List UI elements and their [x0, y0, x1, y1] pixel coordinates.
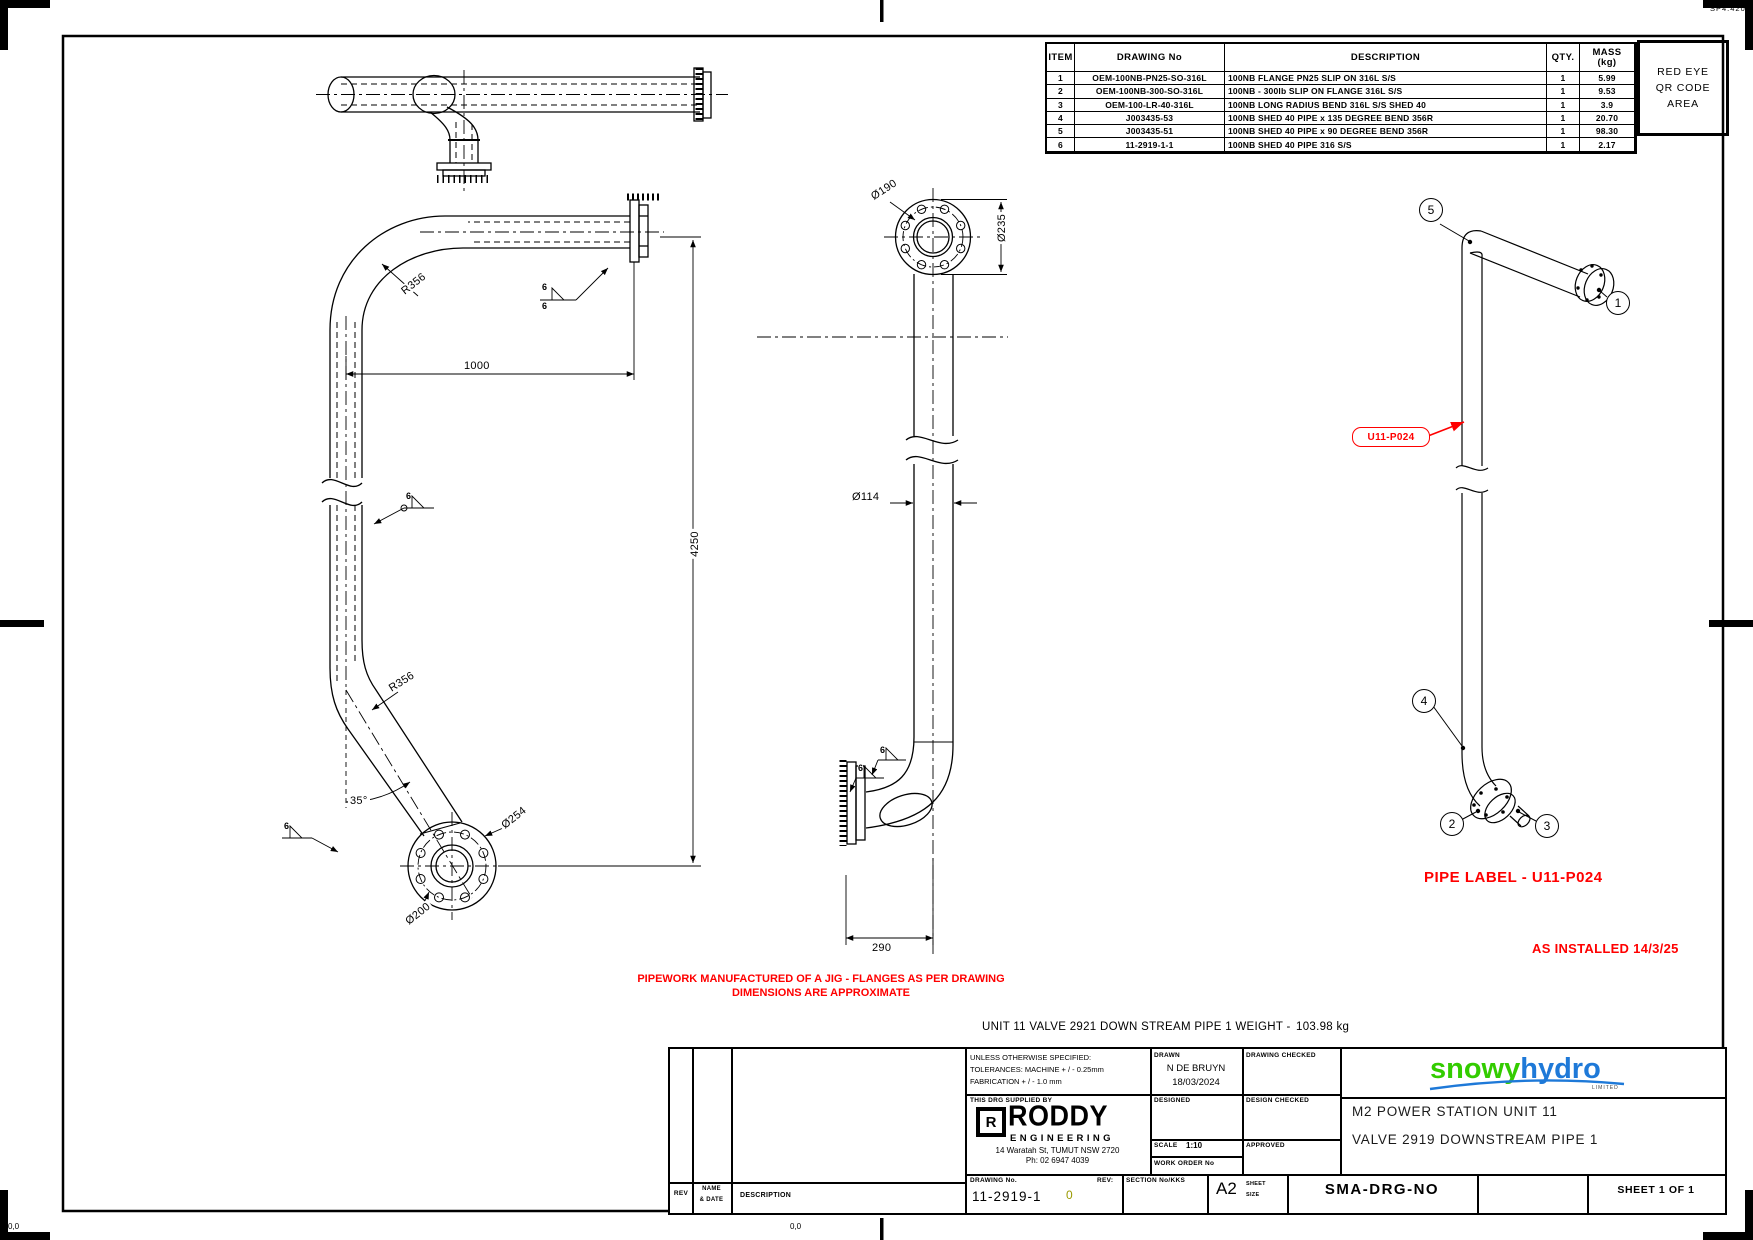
roddy-phone: Ph: 02 6947 4039 [965, 1156, 1150, 1165]
work-order-label: WORK ORDER No [1154, 1160, 1214, 1167]
plan-view [316, 68, 728, 192]
bom-cell: J003435-53 [1075, 112, 1225, 125]
installed-view [1428, 224, 1619, 829]
tolerance-note-line1: UNLESS OTHERWISE SPECIFIED: [970, 1053, 1091, 1062]
bom-header-drawing-no: DRAWING No [1075, 44, 1225, 72]
drawing-title-line2: VALVE 2919 DOWNSTREAM PIPE 1 [1352, 1132, 1598, 1147]
bom-cell: 1 [1547, 85, 1580, 98]
drawing-checked-label: DRAWING CHECKED [1246, 1052, 1316, 1059]
sheet-of: SHEET 1 OF 1 [1587, 1184, 1725, 1196]
rev-column-label: REV [670, 1190, 692, 1197]
roddy-address: 14 Waratah St, TUMUT NSW 2720 [965, 1146, 1150, 1155]
dim-dia235: Ø235 [996, 212, 1008, 244]
bom-cell: 1 [1547, 138, 1580, 151]
dim-290: 290 [870, 942, 893, 954]
bom-cell: 98.30 [1580, 125, 1635, 138]
jig-note-line1: PIPEWORK MANUFACTURED OF A JIG - FLANGES… [631, 973, 1011, 985]
bom-cell: 1 [1547, 99, 1580, 112]
weld-size: 6 [880, 745, 885, 755]
approved-label: APPROVED [1246, 1142, 1285, 1149]
pipe-label-note: PIPE LABEL - U11-P024 [1424, 869, 1603, 886]
weld-size: 6 [858, 763, 863, 773]
drawing-no-value: 11-2919-1 [972, 1189, 1042, 1204]
sma-drg-no: SMA-DRG-NO [1287, 1181, 1477, 1198]
title-block: REV NAME & DATE DESCRIPTION UNLESS OTHER… [668, 1047, 1727, 1215]
bom-cell: 9.53 [1580, 85, 1635, 98]
bom-header-qty: QTY. [1547, 44, 1580, 72]
bom-cell: 1 [1547, 112, 1580, 125]
drawn-name: N DE BRUYN [1150, 1063, 1242, 1074]
bom-cell: 100NB LONG RADIUS BEND 316L S/S SHED 40 [1225, 99, 1547, 112]
drawn-label: DRAWN [1154, 1052, 1180, 1059]
origin-marker-right: 0,0 [790, 1222, 801, 1231]
drawing-sheet: { "page": { "plot_ref": "SP4.420", "orig… [0, 0, 1753, 1240]
drawn-date: 18/03/2024 [1150, 1077, 1242, 1088]
pipe-tag-label: U11-P024 [1352, 427, 1430, 447]
scale-value: 1:10 [1186, 1141, 1202, 1150]
bom-cell: 4 [1047, 112, 1075, 125]
sheet-border [63, 36, 1723, 1211]
sheet-size-label2: SIZE [1246, 1192, 1259, 1198]
weight-label: UNIT 11 VALVE 2921 DOWN STREAM PIPE 1 WE… [982, 1021, 1291, 1033]
elevation-dimensions [282, 237, 701, 912]
bom-cell: 1 [1047, 72, 1075, 85]
paper-size: A2 [1216, 1179, 1237, 1199]
bom-cell: OEM-100NB-300-SO-316L [1075, 85, 1225, 98]
name-date-label-line2: & DATE [692, 1197, 731, 1203]
tolerance-note-line2: TOLERANCES: MACHINE + / - 0.25mm [970, 1065, 1104, 1074]
front-view [757, 188, 1008, 955]
bom-table: ITEM DRAWING No DESCRIPTION QTY. MASS (k… [1045, 42, 1637, 154]
roddy-logo-subtitle: ENGINEERING [1010, 1133, 1114, 1144]
as-installed-note: AS INSTALLED 14/3/25 [1532, 941, 1679, 956]
bom-cell: 5 [1047, 125, 1075, 138]
weld-size: 6 [284, 821, 289, 831]
bom-cell: 100NB - 300lb SLIP ON FLANGE 316L S/S [1225, 85, 1547, 98]
front-dimensions [846, 200, 1007, 946]
bom-cell: 11-2919-1-1 [1075, 138, 1225, 151]
roddy-logo-name: RODDY [1008, 1100, 1108, 1133]
bom-cell: 100NB SHED 40 PIPE 316 S/S [1225, 138, 1547, 151]
qr-code-area: RED EYE QR CODE AREA [1637, 40, 1729, 136]
bom-cell: 1 [1547, 125, 1580, 138]
design-checked-label: DESIGN CHECKED [1246, 1097, 1309, 1104]
dim-dia114: Ø114 [850, 491, 881, 503]
dim-4250: 4250 [689, 529, 701, 559]
designed-label: DESIGNED [1154, 1097, 1190, 1104]
origin-marker-left: 0,0 [8, 1222, 19, 1231]
scale-label: SCALE [1154, 1142, 1178, 1149]
weld-size: 6 [542, 282, 547, 292]
name-date-label-line1: NAME [692, 1186, 731, 1192]
rev-value: 0 [1066, 1188, 1073, 1202]
bom-cell: 2.17 [1580, 138, 1635, 151]
bom-cell: 3 [1047, 99, 1075, 112]
bom-cell: 100NB SHED 40 PIPE x 90 DEGREE BEND 356R [1225, 125, 1547, 138]
bom-cell: OEM-100-LR-40-316L [1075, 99, 1225, 112]
bom-header-description: DESCRIPTION [1225, 44, 1547, 72]
balloon-2: 2 [1440, 812, 1464, 836]
plot-reference: SP4.420 [1710, 4, 1746, 13]
tolerance-note-line3: FABRICATION + / - 1.0 mm [970, 1077, 1062, 1086]
bom-cell: 2 [1047, 85, 1075, 98]
bom-cell: 1 [1547, 72, 1580, 85]
weight-value: 103.98 kg [1296, 1021, 1349, 1033]
bom-header-item: ITEM [1047, 44, 1075, 72]
bom-header-mass: MASS (kg) [1580, 44, 1635, 72]
elevation-view [322, 197, 664, 920]
bom-cell: 100NB FLANGE PN25 SLIP ON 316L S/S [1225, 72, 1547, 85]
bom-cell: 5.99 [1580, 72, 1635, 85]
section-label: SECTION No/KKS [1126, 1177, 1185, 1184]
rev-label: REV: [1097, 1177, 1113, 1184]
bom-cell: 100NB SHED 40 PIPE x 135 DEGREE BEND 356… [1225, 112, 1547, 125]
drawing-title-line1: M2 POWER STATION UNIT 11 [1352, 1104, 1558, 1119]
bom-cell: J003435-51 [1075, 125, 1225, 138]
weld-size: 6 [542, 301, 547, 311]
sheet-size-label1: SHEET [1246, 1181, 1266, 1187]
balloon-3: 3 [1535, 814, 1559, 838]
balloon-4: 4 [1412, 689, 1436, 713]
drawing-no-label: DRAWING No. [970, 1177, 1017, 1184]
dim-35deg: 35° [348, 795, 370, 807]
bom-cell: 6 [1047, 138, 1075, 151]
jig-note-line2: DIMENSIONS ARE APPROXIMATE [631, 987, 1011, 999]
balloon-1: 1 [1606, 291, 1630, 315]
weld-size: 6 [406, 491, 411, 501]
bom-cell: 3.9 [1580, 99, 1635, 112]
balloon-5: 5 [1419, 198, 1443, 222]
snowyhydro-logo-wave [1422, 1051, 1632, 1095]
roddy-logo-icon: R [976, 1107, 1006, 1137]
bom-cell: 20.70 [1580, 112, 1635, 125]
description-column-label: DESCRIPTION [740, 1192, 791, 1199]
dim-1000: 1000 [462, 360, 492, 372]
bom-cell: OEM-100NB-PN25-SO-316L [1075, 72, 1225, 85]
